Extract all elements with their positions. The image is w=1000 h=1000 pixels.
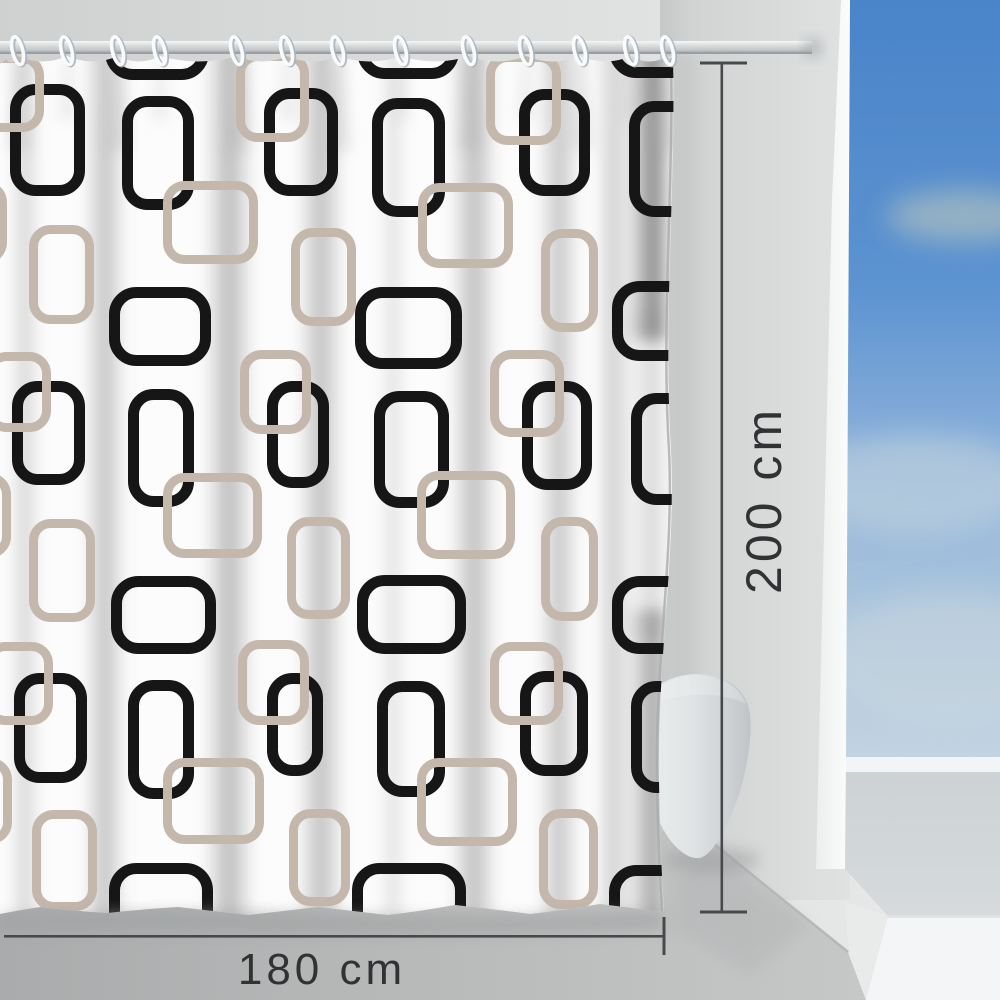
svg-text:200 cm: 200 cm — [736, 406, 792, 594]
svg-text:180 cm: 180 cm — [238, 945, 406, 994]
